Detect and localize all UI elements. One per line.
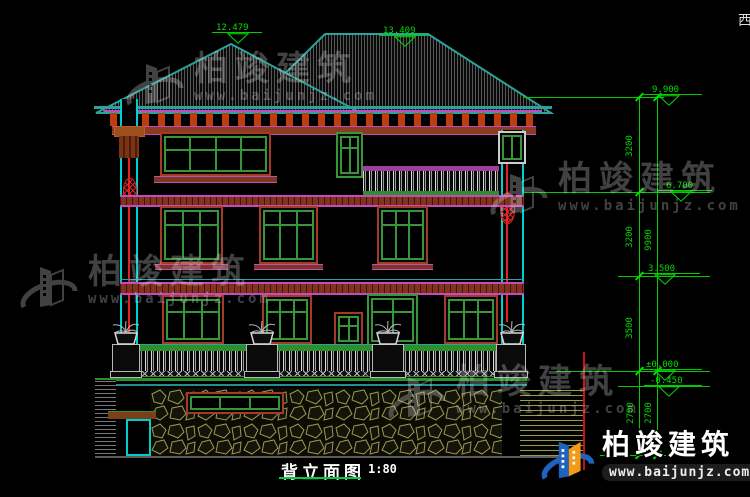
first-floor-small-door (334, 312, 363, 346)
brand-logo: 柏竣建筑 www.baijunjz.com (538, 430, 750, 490)
brand-name: 柏竣建筑 (602, 430, 750, 461)
watermark-url: www.baijunjz.com (558, 198, 741, 214)
level-eave-triangle (658, 95, 680, 106)
railing-pedestal-4 (496, 344, 526, 377)
flower-pot-2 (247, 320, 277, 346)
second-floor-sill-1 (155, 264, 228, 270)
railing-pedestal-1 (112, 344, 140, 377)
dim-base-outer: 2700 (644, 402, 654, 424)
second-floor-window-2 (259, 206, 318, 264)
flower-pot-1 (111, 320, 141, 346)
right-column-accent-rod (506, 164, 508, 322)
left-ledge (108, 411, 156, 419)
level-l2-triangle (654, 274, 676, 285)
dim-f1: 3500 (625, 317, 635, 339)
brand-logo-icon (538, 430, 596, 490)
veranda-railing-balusters (121, 351, 525, 371)
dim-leader-eave (524, 97, 664, 98)
cad-canvas: 12.479 13.409 (0, 0, 750, 497)
basement-door (126, 419, 151, 456)
ridge-marker-left-triangle (227, 33, 249, 44)
right-column-capital (498, 131, 526, 164)
corner-text: 西 (738, 10, 750, 30)
drawing-scale: 1:80 (368, 462, 397, 476)
ground-slab-line-2 (95, 384, 527, 386)
ridge-marker-right-triangle (394, 36, 416, 47)
flower-pot-3 (373, 320, 403, 346)
eave-line (94, 106, 552, 109)
second-floor-sill-3 (372, 264, 433, 270)
floor-slab-band-lower (120, 282, 524, 295)
eave-fascia-line (104, 110, 542, 112)
level-terrace-triangle (658, 386, 680, 397)
second-floor-window-1 (160, 206, 223, 264)
dim-overall: 9900 (644, 229, 654, 251)
railing-pedestal-2 (246, 344, 278, 377)
railing-pedestal-3 (372, 344, 404, 377)
brand-url: www.baijunjz.com (602, 464, 750, 481)
left-column-capital-shaft (119, 136, 139, 158)
drawing-title: 背立面图 (281, 458, 365, 483)
dim-f3: 3200 (625, 135, 635, 157)
veranda-railing-x-strip (121, 371, 525, 377)
dim-leader-ground (556, 371, 710, 372)
third-floor-window-sill (154, 176, 277, 183)
watermark-logo-icon (16, 255, 80, 319)
floor-slab-line-teal (120, 279, 524, 280)
left-retaining-wall-section (95, 380, 116, 458)
first-floor-window-a (162, 295, 224, 344)
first-floor-window-d (444, 295, 498, 344)
dim-f2: 3200 (625, 226, 635, 248)
drawing-title-underline (279, 477, 361, 479)
second-floor-window-3 (377, 206, 428, 264)
dim-base-inner: 2700 (626, 402, 636, 424)
watermark-right: 柏竣建筑 www.baijunjz.com (486, 162, 741, 226)
third-floor-window (160, 132, 271, 176)
second-floor-sill-2 (254, 264, 323, 270)
veranda-railing-toprail (121, 344, 525, 351)
third-floor-railing-balusters (363, 171, 499, 191)
flower-pot-4 (497, 320, 527, 346)
third-floor-balcony-door (336, 132, 363, 178)
level-l3-triangle (670, 191, 692, 202)
rafter-tails (110, 113, 538, 126)
basement-window (186, 392, 284, 414)
ground-slab-line-1 (95, 378, 527, 381)
